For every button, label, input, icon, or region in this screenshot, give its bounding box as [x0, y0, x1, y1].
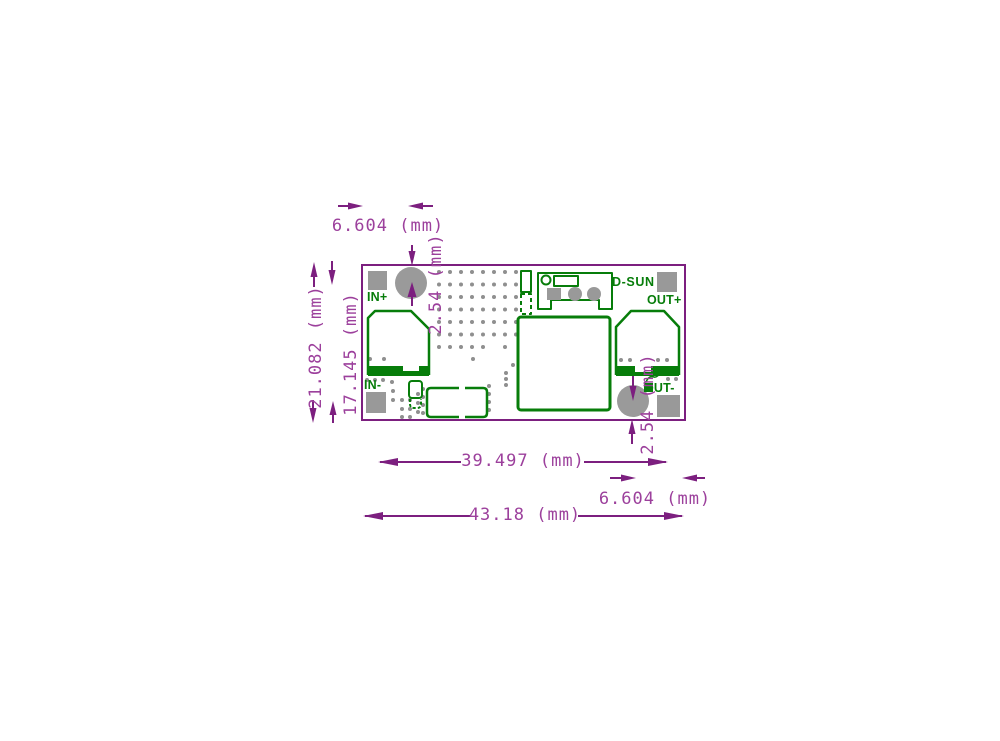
solder-dot [470, 333, 474, 337]
solder-dot [408, 415, 412, 419]
capacitor-input-outline [368, 311, 429, 375]
solder-dot [391, 398, 395, 402]
solder-dot [628, 358, 632, 362]
solder-dot [448, 283, 452, 287]
small-footprint-outline [409, 381, 422, 398]
solder-dot [470, 308, 474, 312]
solder-dot [503, 283, 507, 287]
solder-dot [470, 345, 474, 349]
solder-dot [481, 320, 485, 324]
arrow-head-left-icon [363, 512, 383, 520]
arrow-head-left-icon [682, 475, 697, 482]
solder-dot [459, 283, 463, 287]
arrow-head-right-icon [648, 458, 668, 466]
diode-pad-right [465, 388, 487, 417]
solder-dot [470, 270, 474, 274]
solder-dot [503, 308, 507, 312]
trimmer-window [554, 276, 578, 286]
solder-dot [437, 345, 441, 349]
solder-dot [459, 333, 463, 337]
passive-footprint-dashed [521, 294, 531, 314]
arrow-head-down-icon [409, 251, 416, 266]
solder-dot [504, 371, 508, 375]
solder-dot [459, 308, 463, 312]
diode-pad-left [427, 388, 459, 417]
solder-dot [503, 295, 507, 299]
solder-dot [448, 270, 452, 274]
solder-dot [504, 383, 508, 387]
label-out-plus: OUT+ [647, 294, 682, 307]
dim-text-bottom-hole-offset: 2.54 (mm) [638, 353, 658, 454]
arrow-head-up-icon [629, 419, 636, 434]
solder-dot [492, 308, 496, 312]
trimmer-contact-circle-2 [587, 287, 601, 301]
solder-dot [503, 345, 507, 349]
solder-dot [448, 308, 452, 312]
solder-dot [619, 358, 623, 362]
solder-dot [481, 283, 485, 287]
solder-dot [459, 270, 463, 274]
pcb-dimension-diagram: IN+ IN- OUT+ OUT- D-SUN 6.604 (mm) 2.54 … [0, 0, 1000, 741]
solder-dot [503, 320, 507, 324]
solder-dot [514, 295, 518, 299]
arrow-head-left-icon [378, 458, 398, 466]
solder-dot [390, 380, 394, 384]
solder-dot [481, 345, 485, 349]
arrow-head-right-icon [348, 203, 363, 210]
arrow-head-right-icon [621, 475, 636, 482]
solder-dot [514, 283, 518, 287]
pad-out-minus [657, 395, 680, 417]
solder-dot [470, 283, 474, 287]
solder-dot [487, 384, 491, 388]
solder-dot [492, 333, 496, 337]
solder-dot [459, 345, 463, 349]
solder-dot [481, 270, 485, 274]
passive-footprint-solid [521, 271, 531, 292]
solder-dot [448, 345, 452, 349]
dim-text-pad-row-span: 17.145 (mm) [341, 292, 361, 416]
solder-dot [448, 333, 452, 337]
pad-in-plus [368, 271, 387, 290]
pad-out-plus [657, 272, 677, 292]
solder-dot [421, 411, 425, 415]
solder-dot [400, 398, 404, 402]
solder-dot [492, 320, 496, 324]
label-in-minus: IN- [364, 379, 381, 392]
trimmer-screw-circle [542, 276, 551, 285]
solder-dot [416, 392, 420, 396]
solder-dot [470, 320, 474, 324]
label-in-plus: IN+ [367, 291, 387, 304]
solder-dot [416, 410, 420, 414]
solder-dot [416, 401, 420, 405]
solder-dot [408, 407, 412, 411]
solder-dot [511, 363, 515, 367]
pad-in-minus [366, 392, 386, 413]
solder-dot [459, 320, 463, 324]
dim-text-top-hole-offset: 2.54 (mm) [426, 233, 446, 334]
solder-dot [459, 295, 463, 299]
solder-dot [481, 295, 485, 299]
solder-dot [481, 333, 485, 337]
solder-dot [400, 415, 404, 419]
label-brand: D-SUN [612, 276, 655, 289]
trimmer-contact-square [547, 288, 561, 300]
arrow-head-down-icon [329, 270, 336, 285]
solder-dot [492, 295, 496, 299]
dim-text-bottom-right-offset: 6.604 (mm) [599, 489, 711, 509]
diagram-canvas [0, 0, 1000, 741]
solder-dot [665, 358, 669, 362]
solder-dot [381, 378, 385, 382]
solder-dot [514, 270, 518, 274]
solder-dot [400, 407, 404, 411]
solder-dot [448, 320, 452, 324]
solder-dot [492, 283, 496, 287]
arrow-head-up-icon [311, 262, 318, 277]
solder-dot [470, 295, 474, 299]
solder-dot [471, 357, 475, 361]
solder-dot [391, 389, 395, 393]
solder-dot [481, 308, 485, 312]
solder-dot [382, 357, 386, 361]
trimmer-contacts [547, 287, 601, 301]
solder-dot [492, 270, 496, 274]
capacitor-input-polarity-bar [368, 366, 429, 376]
arrow-head-left-icon [408, 203, 423, 210]
solder-dot [503, 270, 507, 274]
dim-text-board-height: 21.082 (mm) [306, 285, 326, 409]
solder-dot [514, 308, 518, 312]
arrow-head-down-icon [310, 408, 317, 423]
dim-text-board-width: 43.18 (mm) [469, 505, 581, 525]
solder-dot [504, 377, 508, 381]
solder-dot [503, 333, 507, 337]
arrow-head-right-icon [664, 512, 684, 520]
arrow-head-up-icon [330, 401, 337, 415]
trimmer-contact-circle-1 [568, 287, 582, 301]
solder-dot [448, 295, 452, 299]
inductor-outline [518, 317, 610, 410]
dim-text-pad-col-span: 39.497 (mm) [461, 451, 585, 471]
